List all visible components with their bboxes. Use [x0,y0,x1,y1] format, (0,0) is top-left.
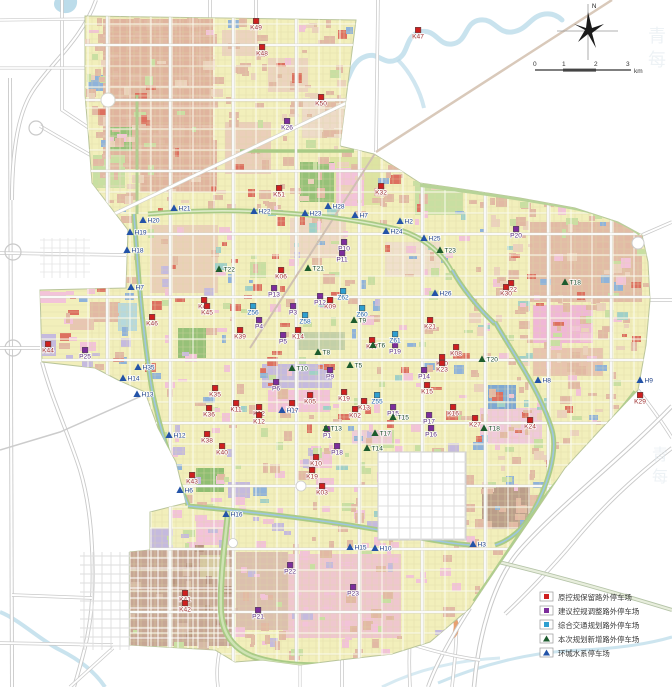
svg-text:K35: K35 [209,392,221,399]
svg-text:K48: K48 [256,51,268,58]
svg-text:K12: K12 [253,419,265,426]
svg-text:K09: K09 [324,304,336,311]
svg-text:H7: H7 [136,285,145,292]
svg-text:T14: T14 [372,446,384,453]
svg-text:H18: H18 [132,248,144,255]
svg-text:K44: K44 [42,348,54,355]
svg-text:T20: T20 [487,357,499,364]
svg-text:K23: K23 [436,367,448,374]
svg-text:T10: T10 [297,366,309,373]
svg-text:K40: K40 [216,450,228,457]
svg-text:原控规保留路外停车场: 原控规保留路外停车场 [558,593,632,602]
svg-text:H22: H22 [259,209,271,216]
svg-text:P20: P20 [510,233,522,240]
svg-text:K51: K51 [273,192,285,199]
svg-text:环城水系停车场: 环城水系停车场 [558,649,610,658]
svg-text:H28: H28 [333,204,345,211]
svg-text:Z61: Z61 [389,338,401,345]
svg-text:H7: H7 [360,213,369,220]
svg-text:P16: P16 [425,432,437,439]
svg-text:K02: K02 [349,413,361,420]
svg-text:H2: H2 [405,219,414,226]
svg-text:K43: K43 [186,479,198,486]
svg-text:Z62: Z62 [337,295,349,302]
svg-text:H15: H15 [355,545,367,552]
svg-text:K26: K26 [281,125,293,132]
svg-text:P13: P13 [268,292,280,299]
svg-text:K08: K08 [450,351,462,358]
svg-text:T18: T18 [570,280,582,287]
svg-text:K32: K32 [375,190,387,197]
svg-text:P23: P23 [347,591,359,598]
svg-text:T21: T21 [313,266,325,273]
svg-text:综合交通规划路外停车场: 综合交通规划路外停车场 [558,621,639,630]
svg-text:H24: H24 [391,229,403,236]
svg-text:K13: K13 [358,405,370,412]
svg-text:K05: K05 [304,399,316,406]
svg-text:K46: K46 [146,321,158,328]
svg-text:K47: K47 [412,34,424,41]
svg-text:T15: T15 [398,415,410,422]
svg-text:H3: H3 [478,542,487,549]
svg-text:H25: H25 [429,236,441,243]
svg-text:K19: K19 [306,474,318,481]
svg-text:K38: K38 [201,438,213,445]
svg-text:本次规划新增路外停车场: 本次规划新增路外停车场 [558,635,639,644]
svg-text:P5: P5 [279,339,287,346]
svg-text:P9: P9 [326,374,334,381]
svg-text:K03: K03 [316,490,328,497]
svg-text:K42: K42 [179,607,191,614]
svg-text:青: 青 [652,446,668,464]
svg-text:H10: H10 [380,546,392,553]
svg-text:T18: T18 [489,426,501,433]
svg-text:H8: H8 [543,378,552,385]
svg-text:P14: P14 [418,374,430,381]
svg-text:T17: T17 [380,431,392,438]
svg-text:K36: K36 [203,412,215,419]
svg-text:K15: K15 [421,389,433,396]
svg-text:H14: H14 [128,376,140,383]
svg-text:3: 3 [626,61,630,68]
svg-text:P11: P11 [336,257,348,264]
svg-text:P4: P4 [255,324,263,331]
svg-text:H16: H16 [231,512,243,519]
svg-text:0: 0 [533,61,537,68]
svg-text:K50: K50 [315,101,327,108]
svg-text:P21: P21 [252,614,264,621]
svg-text:T5: T5 [355,363,363,370]
svg-text:P22: P22 [284,569,296,576]
svg-text:T8: T8 [323,350,331,357]
svg-text:P17: P17 [423,419,435,426]
svg-text:Z56: Z56 [247,310,259,317]
svg-text:K11: K11 [230,407,242,414]
svg-text:H6: H6 [185,488,194,495]
svg-text:青: 青 [648,26,666,46]
svg-text:K49: K49 [250,25,262,32]
svg-text:K16: K16 [447,411,459,418]
svg-text:K24: K24 [524,424,536,431]
svg-text:P19: P19 [389,349,401,356]
svg-text:H19: H19 [135,230,147,237]
svg-text:H17: H17 [287,408,299,415]
svg-text:K27: K27 [469,422,481,429]
svg-text:建议控规调整路外停车场: 建议控规调整路外停车场 [558,607,639,616]
svg-text:T23: T23 [445,248,457,255]
svg-text:K19: K19 [338,396,350,403]
svg-text:P12: P12 [314,300,326,307]
svg-text:P18: P18 [331,450,343,457]
svg-text:2: 2 [594,61,598,68]
svg-text:Z55: Z55 [371,399,383,406]
svg-text:H26: H26 [440,291,452,298]
svg-text:K29: K29 [634,399,646,406]
svg-text:T9: T9 [359,318,367,325]
svg-text:K45: K45 [201,310,213,317]
svg-text:K14: K14 [292,334,304,341]
svg-text:K10: K10 [310,461,322,468]
svg-text:K06: K06 [275,274,287,281]
svg-text:T13: T13 [331,426,343,433]
svg-text:P6: P6 [272,386,280,393]
svg-text:P1: P1 [323,433,331,440]
svg-text:每: 每 [652,468,668,486]
svg-text:1: 1 [562,61,566,68]
svg-text:km: km [634,68,643,75]
svg-text:H21: H21 [179,206,191,213]
svg-text:P25: P25 [79,354,91,361]
svg-text:H12: H12 [174,433,186,440]
svg-text:H23: H23 [310,211,322,218]
svg-text:Z58: Z58 [299,319,311,326]
svg-text:每: 每 [648,50,666,70]
svg-text:H35: H35 [143,365,155,372]
svg-text:T22: T22 [224,267,236,274]
svg-text:T6: T6 [378,343,386,350]
svg-text:H20: H20 [148,218,160,225]
svg-text:P3: P3 [289,310,297,317]
svg-text:K21: K21 [424,324,436,331]
svg-text:K30: K30 [500,291,512,298]
svg-text:N: N [592,4,596,10]
svg-text:K39: K39 [234,334,246,341]
svg-text:H9: H9 [645,378,654,385]
svg-text:H13: H13 [142,392,154,399]
